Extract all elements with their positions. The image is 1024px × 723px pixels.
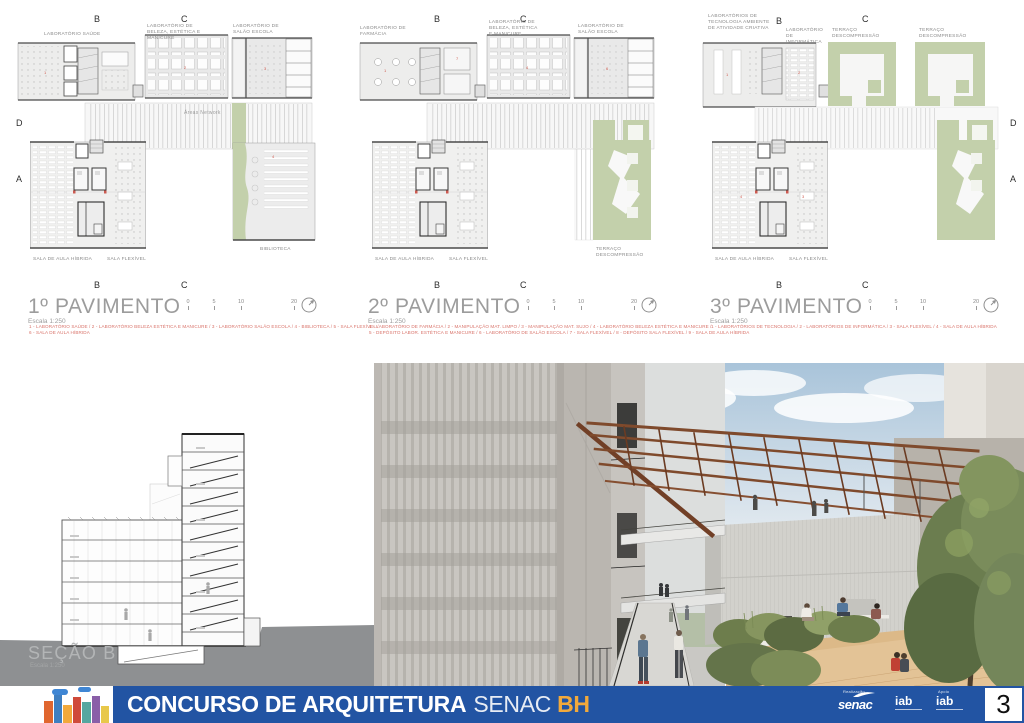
- grid-letter: B: [434, 280, 440, 290]
- room-label: LABORATÓRIO DE INFORMÁTICA: [786, 28, 830, 45]
- iab-logo-text: iab: [936, 694, 953, 708]
- scale-tick: 5: [209, 299, 219, 310]
- page-number: 3: [985, 688, 1022, 721]
- legend-line: 5 - DEPÓSITO LABOR. ESTÉTICA E MANICURE …: [369, 330, 749, 336]
- plan-3-title-block: 3º PAVIMENTO Escala 1:250 0 5 10 20 1 - …: [710, 296, 1024, 340]
- scale-tick: 0: [865, 299, 875, 310]
- floor-plan-panel-2: 1 4 6 7 B C B C LABORATÓRIO DE FARMÁCIA …: [356, 8, 688, 300]
- room-label: SALA FLEXÍVEL: [449, 257, 499, 263]
- scale-tick: 0: [523, 299, 533, 310]
- plan-2-title-block: 2º PAVIMENTO Escala 1:250 0 5 10 20 1 - …: [368, 296, 698, 340]
- room-label: SALA DE AULA HÍBRIDA: [33, 257, 103, 263]
- cloud-icon: [78, 687, 91, 692]
- iab-logo-subtext-line: [936, 709, 963, 710]
- senac-logo: senac: [838, 697, 872, 712]
- room-label: LABORATÓRIO DE BELEZA, ESTÉTICA E MANICU…: [147, 24, 213, 41]
- city-illustration: [0, 686, 113, 723]
- scale-tick: 10: [236, 299, 246, 310]
- scale-tick: 5: [549, 299, 559, 310]
- scale-bar: 0 5 10 20: [183, 299, 308, 313]
- building-icon: [44, 701, 53, 723]
- building-icon: [101, 706, 109, 723]
- area-label: Áreas Network: [184, 110, 221, 116]
- room-label: BIBLIOTECA: [260, 247, 310, 253]
- scale-bar: 0 5 10 20: [523, 299, 648, 313]
- iab-logo-text: iab: [895, 694, 912, 708]
- iab-logo-subtext-line: [895, 709, 922, 710]
- building-icon: [54, 695, 62, 723]
- perspective-rendering: [374, 363, 1024, 686]
- banner-title-part2: ARQUITETURA: [302, 691, 466, 717]
- room-label: LABORATÓRIO DE SALÃO ESCOLA: [578, 24, 628, 36]
- room-label: LABORATÓRIO DE BELEZA, ESTÉTICA E MANICU…: [489, 20, 541, 37]
- room-label: TERRAÇO DESCOMPRESSÃO: [596, 247, 648, 259]
- banner-title-part4: BH: [557, 691, 590, 717]
- floor-plan-panel-3: 1 2 3 4 B C D A B C LABORATÓRIOS DE TECN…: [700, 8, 1024, 300]
- scale-tick: 10: [576, 299, 586, 310]
- room-label: TERRAÇO DESCOMPRESSÃO: [919, 28, 965, 40]
- room-label: SALA FLEXÍVEL: [789, 257, 839, 263]
- grid-letter: C: [862, 280, 869, 290]
- building-icon: [63, 705, 72, 723]
- grid-letter: B: [94, 14, 100, 24]
- building-icon: [73, 697, 81, 723]
- grid-letter: B: [776, 280, 782, 290]
- grid-letter: B: [94, 280, 100, 290]
- room-label: TERRAÇO DESCOMPRESSÃO: [832, 28, 878, 40]
- room-label: LABORATÓRIO DE FARMÁCIA: [360, 26, 410, 38]
- section-title: SEÇÃO B: [28, 643, 116, 664]
- banner-title-part1: CONCURSO DE: [127, 691, 296, 717]
- scale-tick: 5: [891, 299, 901, 310]
- scale-tick: 20: [629, 299, 639, 310]
- legend-line: 1 - LABORATÓRIOS DE TECNOLOGIA / 2 - LAB…: [711, 324, 997, 330]
- scale-bar: 0 5 10 20: [865, 299, 990, 313]
- grid-letter: B: [776, 16, 782, 26]
- room-label: SALA DE AULA HÍBRIDA: [715, 257, 785, 263]
- building-icon: [82, 702, 91, 723]
- room-label: LABORATÓRIOS DE TECNOLOGIA AMBIENTE DE A…: [708, 14, 770, 31]
- north-arrow-icon: [640, 296, 658, 314]
- north-arrow-icon: [300, 296, 318, 314]
- iab-logo: iab: [936, 694, 963, 710]
- legend-line: 6 - SALA DE AULA HÍBRIDA: [29, 330, 90, 336]
- grid-letter: D: [16, 118, 23, 128]
- grid-letter: A: [1010, 174, 1016, 184]
- scale-tick: 20: [971, 299, 981, 310]
- room-label: LABORATÓRIO DE SALÃO ESCOLA: [233, 24, 283, 36]
- presentation-board: 1 2 3 4 B C D A B C LABORATÓRIO SAÚDE LA…: [0, 0, 1024, 723]
- grid-letter: B: [434, 14, 440, 24]
- section-scale: Escala 1:250: [30, 663, 65, 669]
- grid-letter: C: [181, 280, 188, 290]
- grid-letter: C: [862, 14, 869, 24]
- building-icon: [92, 696, 100, 723]
- plan-1-title-block: 1º PAVIMENTO Escala 1:250 0 5 10 20 1 - …: [28, 296, 358, 340]
- scale-tick: 10: [918, 299, 928, 310]
- room-label: SALA FLEXÍVEL: [107, 257, 157, 263]
- floor-plan-panel-1: 1 2 3 4 B C D A B C LABORATÓRIO SAÚDE LA…: [14, 8, 346, 300]
- grid-letter: D: [1010, 118, 1017, 128]
- north-arrow-icon: [982, 296, 1000, 314]
- grid-letter: C: [181, 14, 188, 24]
- scale-tick: 0: [183, 299, 193, 310]
- grid-letter: C: [520, 280, 527, 290]
- iab-logo: iab: [895, 694, 922, 710]
- scale-tick: 20: [289, 299, 299, 310]
- room-label: SALA DE AULA HÍBRIDA: [375, 257, 445, 263]
- banner-title: CONCURSO DEARQUITETURASENACBH: [127, 691, 590, 718]
- grid-letter: A: [16, 174, 22, 184]
- room-label: LABORATÓRIO SAÚDE: [44, 32, 124, 38]
- banner-title-part3: SENAC: [473, 691, 551, 717]
